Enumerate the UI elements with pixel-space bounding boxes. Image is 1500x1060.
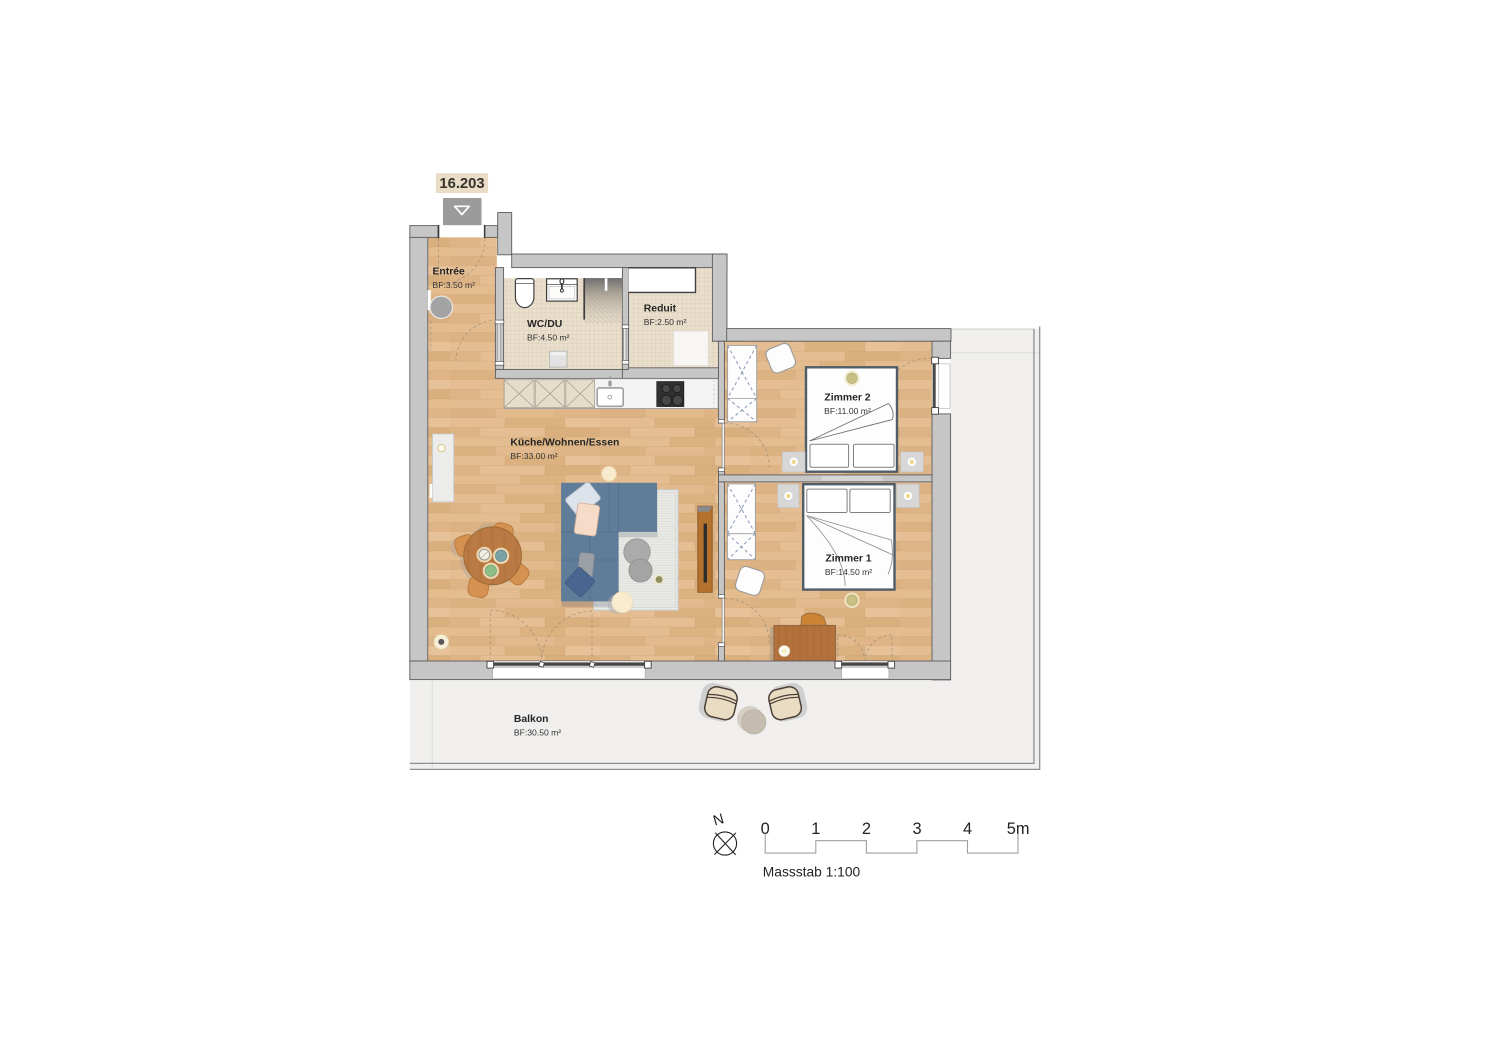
svg-text:Reduit: Reduit	[644, 304, 677, 315]
svg-text:Balkon: Balkon	[514, 714, 549, 725]
svg-text:BF:33.00 m²: BF:33.00 m²	[510, 451, 557, 461]
svg-text:2: 2	[862, 820, 871, 838]
svg-text:1: 1	[811, 820, 820, 838]
svg-text:BF:30.50 m²: BF:30.50 m²	[514, 727, 561, 737]
svg-text:3: 3	[912, 820, 921, 838]
svg-text:Zimmer 2: Zimmer 2	[824, 393, 870, 404]
svg-text:BF:11.00 m²: BF:11.00 m²	[824, 406, 871, 416]
svg-text:N: N	[711, 811, 725, 829]
svg-text:4: 4	[963, 820, 972, 838]
svg-text:BF:14.50 m²: BF:14.50 m²	[825, 567, 872, 577]
svg-text:Massstab 1:100: Massstab 1:100	[763, 865, 861, 880]
svg-text:16.203: 16.203	[439, 176, 484, 192]
svg-text:WC/DU: WC/DU	[527, 319, 562, 330]
svg-text:BF:2.50 m²: BF:2.50 m²	[644, 317, 687, 327]
svg-text:Küche/Wohnen/Essen: Küche/Wohnen/Essen	[510, 438, 619, 449]
svg-text:Entrée: Entrée	[433, 267, 466, 278]
svg-text:BF:4.50 m²: BF:4.50 m²	[527, 332, 570, 342]
svg-text:BF:3.50 m²: BF:3.50 m²	[433, 280, 476, 290]
svg-text:Zimmer 1: Zimmer 1	[825, 554, 871, 565]
